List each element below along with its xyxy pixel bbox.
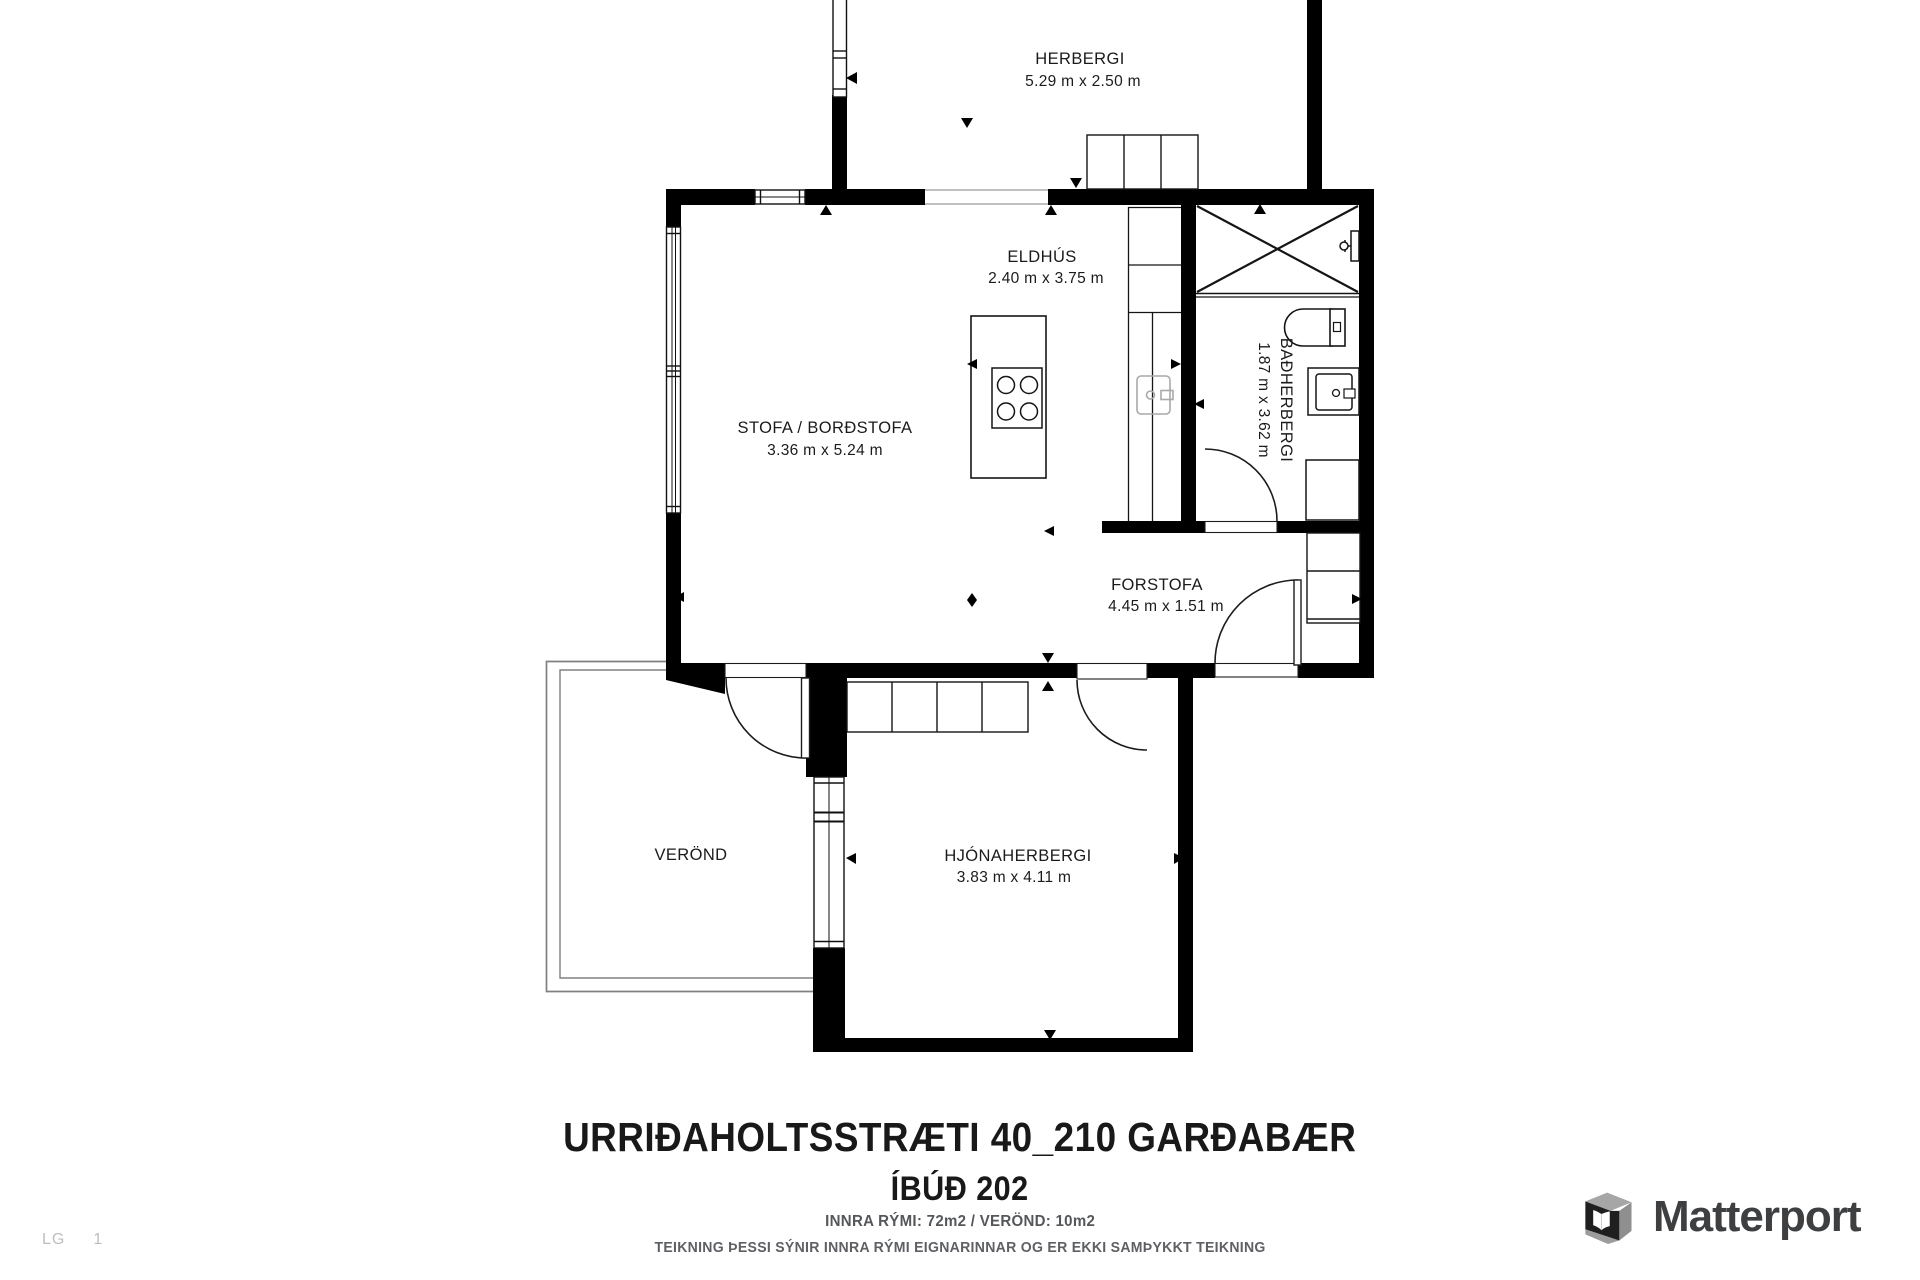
label-hjonaherbergi-name: HJÓNAHERBERGI [944,846,1091,865]
door-bedroom [1077,664,1147,751]
matterport-logo: Matterport [1580,1190,1861,1244]
area-summary: INNRA RÝMI: 72m2 / VERÖND: 10m2 [825,1213,1095,1231]
closet-forstofa [1307,533,1360,623]
window-herbergi-left [833,0,847,97]
shower [1196,206,1359,297]
floor-plan: HERBERGI 5.29 m x 2.50 m ELDHÚS 2.40 m x… [0,0,1920,1280]
marker-icon [1070,178,1082,188]
label-hjonaherbergi-dims: 3.83 m x 4.11 m [957,869,1071,886]
label-forstofa-name: FORSTOFA [1111,576,1203,594]
bathroom-sink [1308,368,1359,415]
closet-bedroom [847,682,1028,732]
apartment-number: ÍBÚÐ 202 [891,1170,1029,1209]
matterport-icon [1580,1190,1636,1244]
marker-icon [1171,359,1181,369]
watermark-right: 1 [93,1231,103,1248]
label-forstofa-dims: 4.45 m x 1.51 m [1108,598,1224,615]
label-stofa-dims: 3.36 m x 5.24 m [767,442,883,459]
kitchen-sink-icon [1137,376,1173,414]
watermark-left: LG [42,1231,65,1248]
marker-icon [846,853,856,864]
marker-icon [961,118,973,128]
matterport-wordmark: Matterport [1653,1192,1861,1242]
disclaimer-text: TEIKNING ÞESSI SÝNIR INNRA RÝMI EIGNARIN… [654,1240,1265,1256]
marker-icon [1045,205,1057,215]
label-stofa-name: STOFA / BORÐSTOFA [738,419,913,437]
shower-fixture-icon [1340,231,1359,261]
page-title: URRIÐAHOLTSSTRÆTI 40_210 GARÐABÆR [563,1114,1356,1161]
floorplan-page: HERBERGI 5.29 m x 2.50 m ELDHÚS 2.40 m x… [0,0,1920,1280]
bathroom-counter [1306,460,1359,520]
label-verond-name: VERÖND [655,846,728,864]
marker-icon [1042,653,1054,663]
opening-herbergi [925,188,1048,206]
window-stofa-left [667,227,681,513]
marker-icon [820,205,832,215]
label-herbergi-dims: 5.29 m x 2.50 m [1025,73,1141,90]
door-entry [1215,580,1301,677]
marker-icon [967,593,977,607]
label-badherbergi-dims: 1.87 m x 3.62 m [1255,342,1272,458]
window-bedroom-left [814,777,844,948]
marker-icon [846,72,857,84]
window-stofa-top [755,190,805,204]
watermark: LG1 [42,1231,103,1249]
windows [667,0,847,948]
kitchen-island [971,316,1046,478]
title-address-row: URRIÐAHOLTSSTRÆTI 40_210 GARÐABÆR [0,1114,1920,1161]
label-eldhus-dims: 2.40 m x 3.75 m [988,270,1104,287]
veranda-outline [547,662,814,992]
closet-herbergi [1087,135,1198,189]
scan-markers [675,72,1362,1040]
door-veranda [725,664,810,759]
stove-icon [992,368,1042,428]
label-eldhus-name: ELDHÚS [1007,247,1076,266]
label-badherbergi-name: BAÐHERBERGI [1277,338,1295,463]
label-herbergi-name: HERBERGI [1035,50,1124,68]
door-bathroom [1205,449,1277,533]
marker-icon [1042,681,1054,691]
marker-icon [1254,204,1266,214]
marker-icon [1044,526,1054,536]
